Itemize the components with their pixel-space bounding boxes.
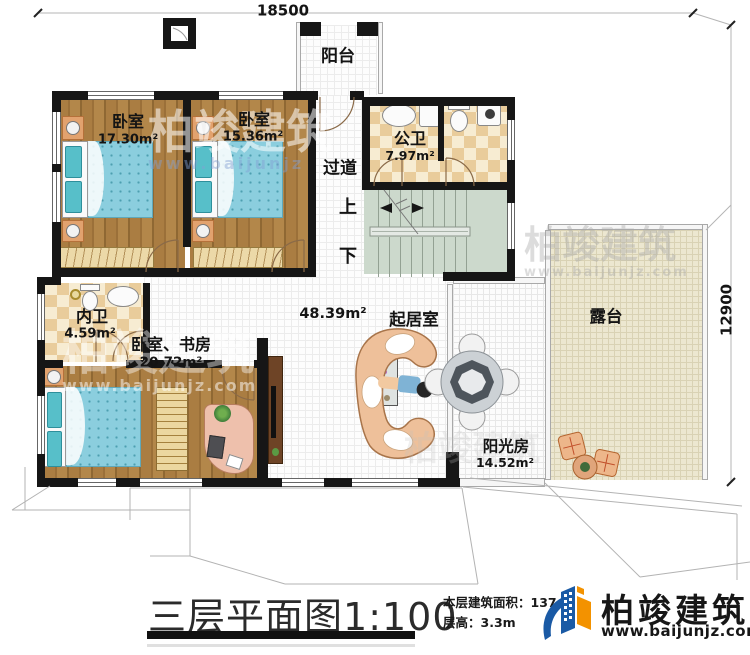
stair-treads-lower xyxy=(368,237,468,277)
room-label-bedroom2: 卧室 xyxy=(238,112,270,128)
balcony-pier xyxy=(357,22,378,36)
bed-mattress xyxy=(66,387,141,467)
pillow xyxy=(65,181,82,213)
room-label-study: 卧室、书房 xyxy=(131,337,211,353)
sink xyxy=(107,286,139,307)
terrace-parapet-right xyxy=(702,224,708,480)
wall xyxy=(443,272,515,281)
room-label-balcony: 阳台 xyxy=(321,49,355,66)
wall xyxy=(446,452,459,484)
floor-height-info: 层高：3.3m xyxy=(443,612,516,631)
room-area-sunroom: 14.52m² xyxy=(476,457,534,470)
decor-item xyxy=(375,392,381,398)
dim-right-label: 12900 xyxy=(720,284,735,336)
pillow xyxy=(65,146,82,178)
bed-mattress xyxy=(88,141,153,218)
window xyxy=(88,91,154,100)
side-table xyxy=(367,357,398,406)
window xyxy=(219,91,283,100)
window xyxy=(282,478,324,487)
window xyxy=(507,120,515,160)
room-label-public-bath: 公卫 xyxy=(394,131,426,147)
brand-logo-icon xyxy=(537,582,599,648)
window xyxy=(52,172,61,222)
bed-mattress xyxy=(218,141,283,218)
wall xyxy=(183,98,191,247)
wall xyxy=(362,97,370,190)
wall xyxy=(45,360,63,368)
nightstand xyxy=(62,220,84,242)
window xyxy=(140,478,202,487)
room-label-living: 起居室 xyxy=(389,312,439,329)
chimney-flue xyxy=(171,26,188,41)
pillow xyxy=(47,392,62,428)
pillow xyxy=(195,146,212,178)
room-area-living: 48.39m² xyxy=(299,307,366,322)
floor-height-label: 层高： xyxy=(443,615,481,630)
shower-drain xyxy=(485,109,495,119)
nightstand xyxy=(62,116,84,140)
wall xyxy=(257,338,268,487)
bookshelf xyxy=(156,387,188,471)
room-label-terrace: 露台 xyxy=(590,309,623,326)
sink xyxy=(382,104,416,127)
room-area-bedroom1: 17.30m² xyxy=(98,134,158,147)
toilet-bowl xyxy=(450,110,468,132)
window xyxy=(37,294,45,340)
pillow xyxy=(47,431,62,467)
floor-plan: 柏竣建筑 www.baijunjz 柏竣建筑 www.baijunjz.com … xyxy=(0,0,750,655)
wall xyxy=(362,182,515,190)
floor-area-label: 本层建筑面积： xyxy=(443,595,531,610)
room-area-bedroom2: 15.36m² xyxy=(223,131,283,144)
stair-up-label: 上 xyxy=(339,199,357,217)
brand-website: www.baijunjz.com xyxy=(601,622,750,640)
room-label-sunroom: 阳光房 xyxy=(483,439,530,455)
toilet-tank xyxy=(80,284,100,291)
terrace-floor xyxy=(548,230,704,480)
title-underline xyxy=(147,631,415,639)
nightstand xyxy=(192,116,214,140)
room-label-corridor: 过道 xyxy=(323,161,357,178)
window xyxy=(352,478,418,487)
stair-treads-upper xyxy=(368,190,468,228)
window xyxy=(507,203,515,249)
sunroom-glass-left xyxy=(447,284,453,478)
room-label-bedroom1: 卧室 xyxy=(112,114,144,130)
title-underline-light xyxy=(147,644,415,647)
tv-screen xyxy=(271,386,276,438)
wardrobe xyxy=(193,247,283,268)
wall xyxy=(52,268,316,277)
room-area-study: 20.72m² xyxy=(140,356,203,370)
computer-monitor xyxy=(207,435,226,459)
window xyxy=(37,396,45,454)
room-area-inner-bath: 4.59m² xyxy=(64,328,115,341)
nightstand xyxy=(192,220,214,242)
window xyxy=(78,478,116,487)
dim-top-label: 18500 xyxy=(257,4,309,19)
wall xyxy=(308,98,316,277)
floor-height-value: 3.3m xyxy=(481,615,516,630)
room-area-public-bath: 7.97m² xyxy=(385,150,434,163)
pillow xyxy=(195,181,212,213)
balcony-pier xyxy=(300,22,321,36)
wall xyxy=(438,103,444,161)
sunroom-glass-right xyxy=(545,230,551,480)
room-label-inner-bath: 内卫 xyxy=(76,309,108,325)
wardrobe xyxy=(60,247,154,268)
sunroom-glass-bottom xyxy=(453,478,545,487)
decor-item xyxy=(272,448,279,456)
nightstand xyxy=(44,367,64,386)
balcony-rail-right xyxy=(378,22,383,94)
terrace-parapet-top xyxy=(548,224,708,230)
window xyxy=(52,112,61,164)
flower-decor xyxy=(378,368,382,372)
stair-down-label: 下 xyxy=(339,248,357,266)
plant xyxy=(214,405,231,422)
